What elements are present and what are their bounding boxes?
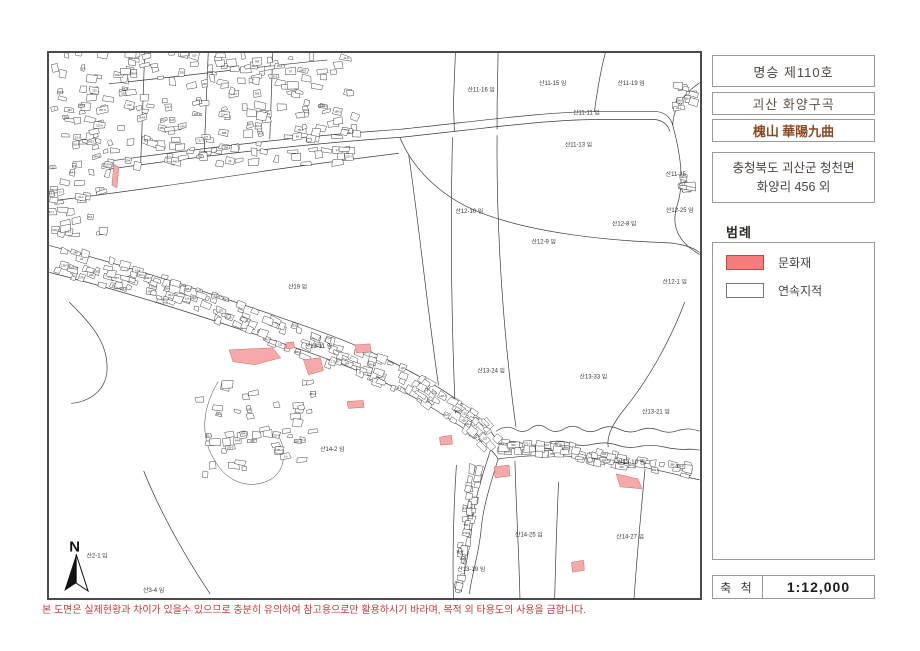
svg-text:368-4: 368-4 bbox=[185, 287, 192, 291]
svg-text:209-3: 209-3 bbox=[295, 439, 302, 443]
svg-text:281-8: 281-8 bbox=[73, 143, 80, 147]
svg-text:33-1: 33-1 bbox=[139, 273, 145, 277]
svg-text:380: 380 bbox=[250, 439, 255, 443]
svg-text:192: 192 bbox=[67, 108, 72, 112]
parcel-label: 산11-25 bbox=[666, 170, 687, 178]
svg-text:364-4: 364-4 bbox=[69, 171, 76, 175]
svg-text:288-7: 288-7 bbox=[460, 557, 467, 561]
svg-text:26-1: 26-1 bbox=[676, 106, 682, 110]
svg-text:386-3: 386-3 bbox=[276, 448, 283, 452]
scale-box: 축 척 1:12,000 bbox=[712, 575, 875, 599]
svg-text:388-8: 388-8 bbox=[456, 549, 463, 553]
svg-text:71-7: 71-7 bbox=[197, 139, 203, 143]
address-box: 충청북도 괴산군 청천면 화양리 456 외 bbox=[712, 152, 875, 203]
svg-text:69-1: 69-1 bbox=[216, 412, 222, 416]
svg-text:398-9: 398-9 bbox=[299, 69, 306, 73]
svg-text:3-6: 3-6 bbox=[72, 164, 76, 168]
svg-text:155-5: 155-5 bbox=[227, 445, 234, 449]
north-arrow-right bbox=[76, 554, 88, 591]
svg-text:110: 110 bbox=[185, 297, 190, 301]
parcel-label: 산14-2 임 bbox=[320, 445, 344, 453]
svg-text:216-8: 216-8 bbox=[221, 112, 228, 116]
svg-text:110-8: 110-8 bbox=[303, 108, 310, 112]
cultural-property-parcel bbox=[440, 435, 453, 445]
svg-text:115: 115 bbox=[170, 118, 175, 122]
parcel-label: 산11-11 임 bbox=[573, 109, 600, 117]
svg-text:81-5: 81-5 bbox=[678, 464, 684, 468]
parcel-label: 산13-33 임 bbox=[580, 373, 608, 381]
svg-text:359-6: 359-6 bbox=[652, 468, 659, 472]
cultural-property-parcel bbox=[355, 344, 371, 353]
parcel-boundaries bbox=[49, 53, 699, 598]
svg-text:22-2: 22-2 bbox=[75, 136, 81, 140]
site-name-korean: 괴산 화양구곡 bbox=[752, 94, 834, 113]
svg-text:149-7: 149-7 bbox=[439, 394, 446, 398]
svg-text:308-7: 308-7 bbox=[294, 350, 301, 354]
svg-text:313: 313 bbox=[92, 88, 97, 92]
svg-text:121: 121 bbox=[278, 343, 283, 347]
scale-label: 축 척 bbox=[713, 576, 763, 598]
warning-text: 본 도면은 실제현황과 차이가 있을수 있으므로 충분히 유의하여 참고용으로만… bbox=[42, 601, 682, 616]
legend-item: 연속지적 bbox=[726, 282, 822, 299]
parcel-label: 산11-13 임 bbox=[565, 140, 592, 148]
svg-text:142-2: 142-2 bbox=[257, 132, 264, 136]
svg-text:225: 225 bbox=[462, 411, 467, 415]
svg-text:249-7: 249-7 bbox=[78, 103, 85, 107]
scale-value: 1:12,000 bbox=[763, 576, 874, 598]
svg-text:85-9: 85-9 bbox=[318, 104, 324, 108]
designation-box: 명승 제110호 bbox=[712, 55, 875, 87]
svg-text:30-9: 30-9 bbox=[224, 298, 230, 302]
svg-text:207-9: 207-9 bbox=[99, 108, 106, 112]
address-text: 충청북도 괴산군 청천면 화양리 456 외 bbox=[733, 159, 855, 195]
svg-text:194: 194 bbox=[126, 158, 131, 162]
svg-text:319: 319 bbox=[602, 452, 607, 456]
svg-text:327: 327 bbox=[224, 314, 229, 318]
legend-item-label: 문화재 bbox=[778, 254, 811, 271]
cadastral-map-sheet: 200-7354-310-7353-1162-42142-291-6255125… bbox=[0, 0, 920, 651]
svg-text:392: 392 bbox=[255, 92, 260, 96]
parcel-label: 산13-21 임 bbox=[642, 407, 670, 415]
svg-text:91-6: 91-6 bbox=[80, 66, 86, 70]
svg-text:196-2: 196-2 bbox=[334, 109, 341, 113]
svg-text:260-2: 260-2 bbox=[368, 362, 375, 366]
svg-text:171: 171 bbox=[331, 359, 336, 363]
svg-text:323-1: 323-1 bbox=[464, 523, 471, 527]
svg-text:94-8: 94-8 bbox=[235, 439, 241, 443]
north-label: N bbox=[69, 539, 80, 555]
svg-text:296-8: 296-8 bbox=[130, 71, 137, 75]
svg-text:164-8: 164-8 bbox=[93, 155, 100, 159]
svg-text:343-5: 343-5 bbox=[57, 90, 64, 94]
svg-text:328-1: 328-1 bbox=[120, 287, 127, 291]
svg-text:393: 393 bbox=[511, 443, 516, 447]
svg-text:125-9: 125-9 bbox=[194, 112, 201, 116]
cultural-property-parcel bbox=[347, 400, 364, 408]
parcel-label: 산12-9 임 bbox=[532, 238, 556, 246]
cultural-property-parcel bbox=[229, 348, 281, 365]
svg-text:55-5: 55-5 bbox=[444, 413, 450, 417]
parcel-label: 산11-15 임 bbox=[539, 79, 566, 87]
parcel-label: 산11-16 임 bbox=[468, 86, 495, 94]
svg-text:159-1: 159-1 bbox=[309, 392, 316, 396]
svg-text:123: 123 bbox=[483, 437, 488, 441]
svg-text:298: 298 bbox=[224, 145, 229, 149]
svg-text:255: 255 bbox=[160, 126, 165, 130]
svg-text:227-1: 227-1 bbox=[346, 155, 353, 159]
legend-swatch bbox=[726, 283, 764, 298]
cultural-property-highlights bbox=[112, 164, 642, 572]
svg-text:250-6: 250-6 bbox=[164, 287, 171, 291]
site-name-hanja: 槐山 華陽九曲 bbox=[753, 121, 834, 140]
svg-text:227-6: 227-6 bbox=[273, 433, 280, 437]
cultural-property-parcel bbox=[286, 342, 295, 349]
svg-text:268: 268 bbox=[202, 82, 207, 86]
parcel-label: 산14-27 임 bbox=[616, 532, 644, 540]
svg-text:346: 346 bbox=[89, 273, 94, 277]
svg-text:31-7: 31-7 bbox=[166, 105, 172, 109]
svg-text:63-4: 63-4 bbox=[256, 124, 262, 128]
cultural-property-parcel bbox=[112, 164, 119, 188]
svg-text:357: 357 bbox=[115, 276, 120, 280]
svg-text:239-7: 239-7 bbox=[145, 276, 152, 280]
svg-text:384: 384 bbox=[670, 462, 675, 466]
cultural-property-parcel bbox=[572, 560, 585, 572]
cadastral-map: 200-7354-310-7353-1162-42142-291-6255125… bbox=[49, 53, 700, 598]
svg-text:287-7: 287-7 bbox=[247, 122, 254, 126]
parcel-label: 산14-25 임 bbox=[515, 530, 543, 538]
svg-text:374-6: 374-6 bbox=[105, 162, 112, 166]
legend-swatch bbox=[726, 255, 764, 270]
svg-text:111-7: 111-7 bbox=[206, 433, 213, 437]
parcel-label: 산13-19 임 bbox=[457, 565, 485, 573]
svg-text:106-2: 106-2 bbox=[246, 408, 253, 412]
legend-item-label: 연속지적 bbox=[778, 282, 822, 299]
svg-text:134-8: 134-8 bbox=[139, 116, 146, 120]
svg-text:209-5: 209-5 bbox=[676, 99, 683, 103]
svg-text:304-3: 304-3 bbox=[241, 432, 248, 436]
dense-parcel-clusters: 200-7354-310-7353-1162-42142-291-6255125… bbox=[49, 53, 699, 593]
svg-text:83-9: 83-9 bbox=[168, 293, 174, 297]
svg-text:177: 177 bbox=[204, 135, 209, 139]
svg-text:279: 279 bbox=[79, 276, 84, 280]
cultural-property-parcel bbox=[616, 474, 642, 489]
svg-text:222: 222 bbox=[432, 391, 437, 395]
parcel-label: 산2-1 임 bbox=[86, 551, 107, 559]
svg-text:333-7: 333-7 bbox=[53, 228, 60, 232]
svg-text:242-5: 242-5 bbox=[88, 139, 95, 143]
svg-text:369: 369 bbox=[73, 251, 78, 255]
parcel-label: 산12-1 임 bbox=[663, 277, 687, 285]
parcel-label: 산3-4 임 bbox=[143, 586, 164, 594]
parcel-label: 산11-19 임 bbox=[617, 79, 644, 87]
svg-text:138-5: 138-5 bbox=[61, 264, 68, 268]
svg-text:312: 312 bbox=[88, 215, 93, 219]
svg-text:10-7: 10-7 bbox=[161, 118, 167, 122]
parcel-label: 산12-25 임 bbox=[666, 206, 694, 214]
svg-text:357: 357 bbox=[198, 154, 203, 158]
svg-text:392: 392 bbox=[180, 71, 185, 75]
svg-text:155-2: 155-2 bbox=[270, 75, 277, 79]
svg-text:249: 249 bbox=[180, 124, 185, 128]
svg-text:149: 149 bbox=[197, 289, 202, 293]
north-arrow-left bbox=[64, 554, 76, 591]
parcel-label: 산12-8 임 bbox=[612, 220, 636, 228]
svg-text:345-4: 345-4 bbox=[216, 295, 223, 299]
legend-item: 문화재 bbox=[726, 254, 811, 271]
svg-text:319: 319 bbox=[127, 103, 132, 107]
svg-text:312-9: 312-9 bbox=[96, 123, 103, 127]
site-name-hanja-box: 槐山 華陽九曲 bbox=[712, 119, 875, 142]
svg-text:310: 310 bbox=[192, 53, 197, 57]
svg-text:355: 355 bbox=[95, 269, 100, 273]
legend-box: 문화재연속지적 bbox=[712, 242, 875, 560]
svg-text:23-3: 23-3 bbox=[78, 195, 84, 199]
map-frame: 200-7354-310-7353-1162-42142-291-6255125… bbox=[47, 51, 702, 600]
svg-text:66-8: 66-8 bbox=[49, 192, 55, 196]
designation-text: 명승 제110호 bbox=[753, 62, 833, 81]
parcel-label: 산13-11 임 bbox=[305, 342, 332, 350]
svg-text:118: 118 bbox=[401, 366, 406, 370]
parcel-label: 산19 임 bbox=[288, 282, 307, 290]
svg-text:254: 254 bbox=[345, 361, 350, 365]
parcel-label: 산13-10 임 bbox=[617, 458, 645, 466]
svg-text:267-1: 267-1 bbox=[49, 210, 55, 214]
svg-text:44-5: 44-5 bbox=[343, 56, 349, 60]
svg-text:279-1: 279-1 bbox=[463, 531, 470, 535]
parcel-labels: 산11-16 임산11-15 임산11-19 임산11-11 임산11-13 임… bbox=[86, 79, 693, 594]
parcel-label: 산12-10 임 bbox=[455, 207, 483, 215]
svg-text:223: 223 bbox=[219, 309, 224, 313]
svg-text:308: 308 bbox=[222, 131, 227, 135]
legend-title: 범례 bbox=[726, 222, 752, 241]
svg-text:3-6: 3-6 bbox=[284, 454, 288, 458]
svg-text:385: 385 bbox=[255, 60, 260, 64]
site-name-box: 괴산 화양구곡 bbox=[712, 92, 875, 115]
svg-text:35-8: 35-8 bbox=[277, 64, 283, 68]
north-arrow: N bbox=[64, 539, 88, 591]
svg-text:215: 215 bbox=[121, 91, 126, 95]
cultural-property-parcel bbox=[304, 358, 324, 375]
parcel-label: 산13-24 임 bbox=[477, 367, 505, 375]
cultural-property-parcel bbox=[494, 465, 510, 478]
